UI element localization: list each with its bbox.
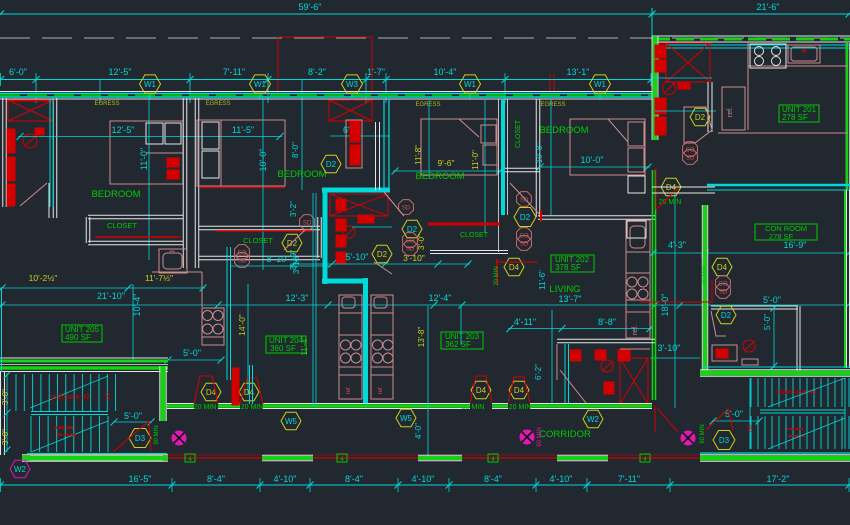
svg-text:3'-2": 3'-2" (289, 201, 298, 217)
svg-text:staircase #1: staircase #1 (777, 387, 817, 396)
svg-text:ref.: ref. (727, 107, 734, 117)
svg-text:BEDROOM: BEDROOM (277, 169, 326, 180)
svg-text:W2: W2 (14, 465, 27, 474)
svg-text:21'-10": 21'-10" (97, 291, 125, 301)
svg-text:D3: D3 (719, 436, 730, 445)
svg-text:5'-0": 5'-0" (183, 348, 201, 358)
svg-text:11'-0": 11'-0" (139, 148, 149, 170)
svg-text:EGRESS: EGRESS (540, 102, 565, 108)
svg-text:20 MIN: 20 MIN (462, 404, 485, 411)
svg-text:13'-7": 13'-7" (559, 294, 582, 304)
svg-text:ref.: ref. (346, 385, 352, 394)
svg-text:9'-6": 9'-6" (438, 158, 455, 168)
svg-text:ref.: ref. (632, 325, 639, 335)
svg-text:D4: D4 (717, 263, 728, 272)
svg-text:4'-0": 4'-0" (414, 423, 423, 439)
svg-text:3'-0": 3'-0" (417, 234, 426, 250)
svg-text:W2: W2 (587, 415, 600, 424)
svg-text:SD: SD (402, 206, 411, 212)
svg-text:CORRIDOR: CORRIDOR (539, 429, 591, 440)
svg-text:90 MIN: 90 MIN (537, 427, 543, 446)
svg-text:W3: W3 (346, 80, 359, 89)
svg-text:490 SF: 490 SF (65, 333, 91, 342)
svg-text:W1: W1 (254, 80, 267, 89)
svg-text:SD: SD (406, 247, 415, 253)
svg-text:6'-0": 6'-0" (9, 67, 27, 77)
svg-text:8'-10": 8'-10" (267, 254, 290, 264)
svg-text:10'-4": 10'-4" (434, 67, 457, 77)
svg-text:▮▮: ▮▮ (802, 48, 806, 53)
svg-text:20 MIN: 20 MIN (702, 265, 708, 284)
svg-text:D2: D2 (326, 160, 337, 169)
svg-text:EGRESS: EGRESS (205, 101, 230, 107)
svg-text:4'-10": 4'-10" (412, 474, 435, 484)
svg-text:W1: W1 (594, 80, 607, 89)
svg-text:8'-4": 8'-4" (484, 474, 502, 484)
svg-text:59'-6": 59'-6" (299, 2, 322, 12)
svg-text:20 MIN: 20 MIN (494, 266, 500, 285)
svg-text:5'-10": 5'-10" (346, 252, 369, 262)
svg-text:8'-0": 8'-0" (291, 142, 300, 158)
svg-text:EGRESS: EGRESS (94, 101, 119, 107)
svg-text:UP: UP (106, 392, 112, 400)
svg-text:W1: W1 (464, 80, 477, 89)
svg-text:D2: D2 (520, 213, 531, 222)
svg-text:D2: D2 (377, 250, 388, 259)
svg-text:8'-4": 8'-4" (345, 474, 363, 484)
svg-text:10'-0": 10'-0" (581, 155, 604, 165)
svg-text:D2: D2 (287, 239, 298, 248)
svg-text:14'-0": 14'-0" (237, 314, 247, 336)
svg-text:11'-7½": 11'-7½" (145, 273, 173, 283)
svg-text:11'-8": 11'-8" (414, 145, 423, 165)
svg-text:BEDROOM: BEDROOM (539, 125, 588, 136)
svg-text:17'-2": 17'-2" (767, 474, 790, 484)
svg-text:D4: D4 (509, 263, 520, 272)
svg-text:16'-5": 16'-5" (129, 474, 152, 484)
svg-text:7'-11": 7'-11" (223, 67, 245, 77)
svg-text:90 MIN: 90 MIN (700, 424, 706, 443)
svg-text:1'-7": 1'-7" (367, 67, 385, 77)
svg-text:3'-10": 3'-10" (292, 254, 301, 275)
svg-text:UP: UP (748, 424, 754, 432)
svg-text:5'-0": 5'-0" (124, 411, 142, 421)
svg-text:8'-4": 8'-4" (207, 474, 225, 484)
svg-text:7'-11": 7'-11" (618, 474, 640, 484)
svg-text:EGRESS: EGRESS (415, 102, 440, 108)
svg-text:SD: SD (238, 259, 247, 265)
svg-text:12'-4": 12'-4" (429, 293, 452, 303)
svg-text:BEDROOM: BEDROOM (415, 171, 464, 182)
svg-text:●●●: ●●● (169, 249, 175, 253)
svg-text:5'-0": 5'-0" (763, 295, 781, 305)
svg-text:4'-3": 4'-3" (668, 240, 686, 250)
svg-text:4'-10": 4'-10" (550, 474, 573, 484)
svg-text:20 MIN: 20 MIN (194, 404, 217, 411)
svg-text:3'-8": 3'-8" (1, 429, 10, 445)
svg-text:3'-10": 3'-10" (658, 343, 681, 353)
svg-text:D3: D3 (135, 434, 146, 443)
svg-text:D2: D2 (721, 311, 732, 320)
svg-text:CLOSET: CLOSET (107, 221, 137, 230)
svg-text:18'-0": 18'-0" (660, 294, 670, 317)
svg-text:CLOSET: CLOSET (460, 232, 489, 239)
svg-text:staircase #2: staircase #2 (50, 392, 90, 401)
svg-text:SD: SD (520, 242, 529, 248)
svg-text:3'-8": 3'-8" (1, 389, 10, 405)
svg-text:278 SF: 278 SF (782, 113, 808, 122)
svg-text:W1: W1 (144, 80, 157, 89)
svg-text:■ ■■ ■■■: ■ ■■ ■■■ (55, 425, 74, 430)
svg-text:ref.: ref. (378, 385, 384, 394)
svg-text:4'-10": 4'-10" (274, 474, 297, 484)
svg-text:11'-0": 11'-0" (471, 150, 480, 170)
svg-text:W5: W5 (285, 417, 298, 426)
svg-text:378 SF: 378 SF (555, 263, 581, 272)
svg-text:W5: W5 (400, 414, 413, 423)
svg-text:4'-11": 4'-11" (514, 317, 536, 327)
svg-text:13'-1": 13'-1" (567, 67, 590, 77)
svg-text:8'-8": 8'-8" (598, 317, 616, 327)
svg-text:11'-6": 11'-6" (538, 270, 547, 290)
svg-text:10'-2½": 10'-2½" (29, 273, 58, 283)
svg-text:12'-5": 12'-5" (112, 125, 135, 135)
svg-text:20 MIN: 20 MIN (509, 404, 532, 411)
svg-text:360 SF: 360 SF (270, 344, 296, 353)
svg-text:5'-0": 5'-0" (763, 314, 772, 330)
svg-text:16'-9": 16'-9" (784, 240, 807, 250)
svg-text:10'-4": 10'-4" (132, 294, 142, 317)
svg-text:10'-8": 10'-8" (535, 143, 544, 164)
svg-text:11'-5": 11'-5" (232, 125, 254, 135)
svg-text:D4: D4 (514, 386, 525, 395)
svg-text:12'-3": 12'-3" (286, 293, 309, 303)
svg-text:362 SF: 362 SF (445, 340, 471, 349)
svg-text:■■ ■■ ■■: ■■ ■■ ■■ (57, 432, 76, 437)
svg-text:13'-8": 13'-8" (417, 327, 426, 348)
svg-text:SD: SD (303, 221, 312, 227)
svg-text:8'-2": 8'-2" (308, 67, 326, 77)
svg-text:SD: SD (719, 290, 728, 296)
svg-text:D4: D4 (476, 386, 487, 395)
svg-text:11'-4": 11'-4" (300, 336, 309, 356)
svg-text:5'-0": 5'-0" (725, 409, 743, 419)
svg-text:SD: SD (686, 156, 695, 162)
svg-text:CLOSET: CLOSET (243, 236, 273, 245)
svg-text:■ ■■ ■■■: ■ ■■ ■■■ (787, 426, 804, 431)
svg-text:20 MIN: 20 MIN (241, 404, 264, 411)
svg-text:BEDROOM: BEDROOM (91, 189, 140, 200)
svg-text:6'-2": 6'-2" (534, 364, 543, 380)
svg-text:12'-5": 12'-5" (109, 67, 132, 77)
svg-text:20 MIN: 20 MIN (659, 199, 682, 206)
svg-text:CLOSET: CLOSET (515, 119, 522, 148)
svg-text:D2: D2 (695, 113, 706, 122)
svg-text:90 MIN: 90 MIN (154, 425, 160, 444)
svg-text:21'-6": 21'-6" (757, 2, 780, 12)
